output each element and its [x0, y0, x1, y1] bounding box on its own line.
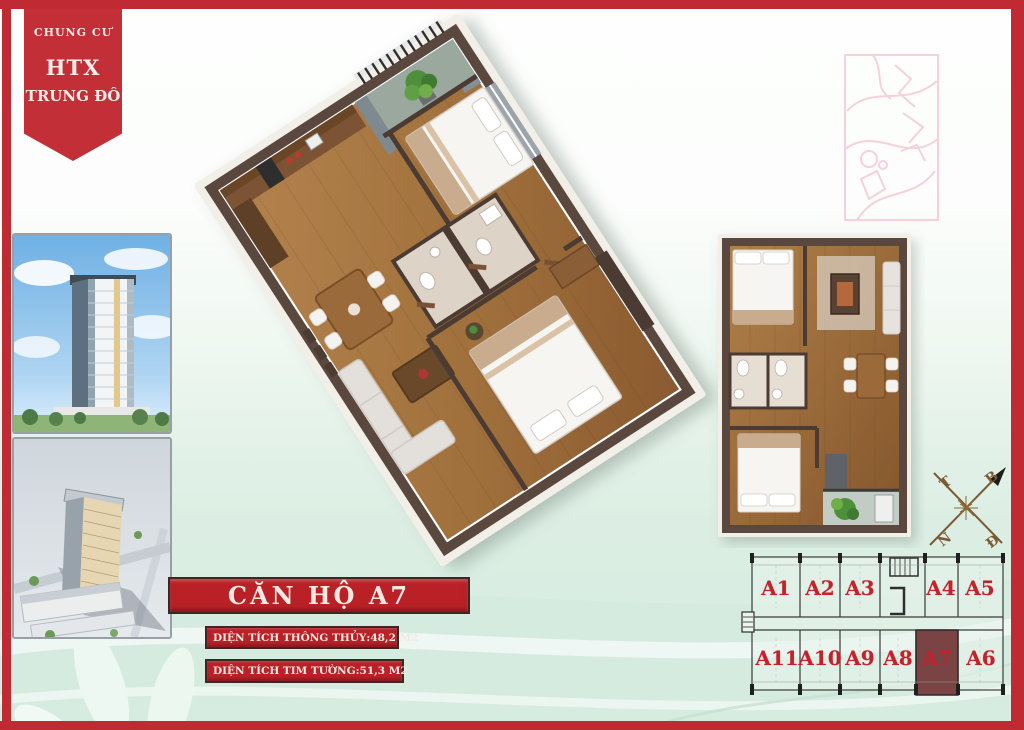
frame-border-left	[2, 8, 11, 722]
project-ribbon: CHUNG CƯ HTX TRUNG ĐÔ	[24, 9, 122, 161]
building-render-photo-2	[12, 437, 172, 639]
spec-value-clear-area: 48,2 M2	[370, 632, 418, 644]
floor-map-walls	[740, 548, 1020, 698]
unit-label-a2: A2	[805, 578, 834, 598]
unit-floorplan-top-view	[705, 228, 925, 548]
unit-label-a3: A3	[845, 578, 874, 598]
frame-border-bottom	[0, 721, 1024, 730]
unit-label-a9: A9	[845, 648, 874, 668]
unit-title-banner: CĂN HỘ A7	[168, 577, 470, 614]
unit-label-a10: A10	[798, 648, 841, 668]
unit-label-a7: A7	[922, 648, 951, 668]
tower-side-face	[72, 279, 88, 421]
spec-bar-gross-area: DIỆN TÍCH TIM TƯỜNG : 51,3 M2	[205, 659, 404, 683]
spec-label-clear-area: DIỆN TÍCH THÔNG THỦY	[213, 632, 366, 644]
unit-label-a11: A11	[755, 648, 798, 668]
main-floorplan-3d	[170, 0, 730, 580]
project-name-line2: TRUNG ĐÔ	[24, 87, 122, 105]
dining-table-top	[857, 354, 885, 398]
unit-label-a6: A6	[966, 648, 995, 668]
bathroom-1-top	[730, 354, 768, 408]
decorative-pattern	[843, 53, 940, 222]
spec-value-gross-area: 51,3 M2	[360, 665, 408, 677]
floor-key-map: A1 A2 A3 A4 A5 A11 A10 A9 A8 A7 A6	[740, 548, 1020, 698]
project-name-line1: HTX	[24, 55, 122, 80]
bathroom-2-top	[768, 354, 806, 408]
entry-lobby	[742, 612, 754, 632]
sofa-top	[883, 262, 900, 334]
project-type: CHUNG CƯ	[24, 26, 122, 39]
unit-title: CĂN HỘ A7	[228, 581, 410, 610]
brochure-page: CHUNG CƯ HTX TRUNG ĐÔ	[0, 0, 1024, 730]
compass: T B N Đ	[920, 455, 1020, 555]
unit-label-a4: A4	[926, 578, 955, 598]
unit-label-a1: A1	[761, 578, 790, 598]
unit-label-a5: A5	[965, 578, 994, 598]
wardrobe-gray	[825, 454, 847, 490]
building-render-photo-1	[12, 233, 172, 434]
compass-icon	[920, 455, 1020, 555]
spec-bar-clear-area: DIỆN TÍCH THÔNG THỦY : 48,2 M2	[205, 626, 399, 649]
unit-label-a8: A8	[883, 648, 912, 668]
spec-label-gross-area: DIỆN TÍCH TIM TƯỜNG	[213, 665, 356, 677]
